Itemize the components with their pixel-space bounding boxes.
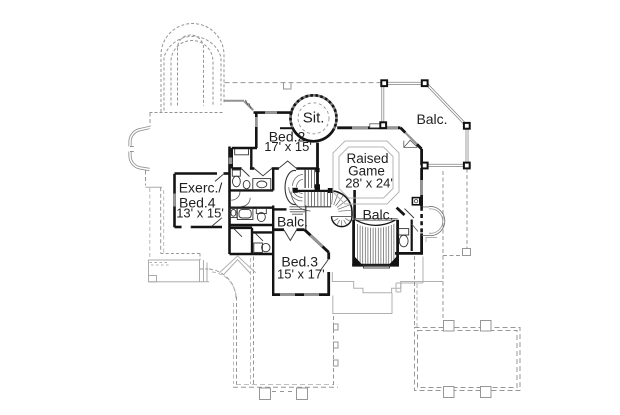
svg-text:Balc.: Balc. (362, 207, 393, 223)
svg-text:Sit.: Sit. (303, 110, 325, 127)
svg-text:17' x 15': 17' x 15' (264, 139, 312, 154)
svg-text:Balc.: Balc. (277, 214, 308, 230)
svg-text:15' x 17': 15' x 17' (277, 266, 325, 281)
svg-text:13' x 15': 13' x 15' (176, 205, 224, 220)
svg-text:Balc.: Balc. (416, 111, 447, 127)
svg-text:28' x 24': 28' x 24' (345, 175, 393, 190)
svg-text:Exerc./: Exerc./ (179, 179, 223, 195)
